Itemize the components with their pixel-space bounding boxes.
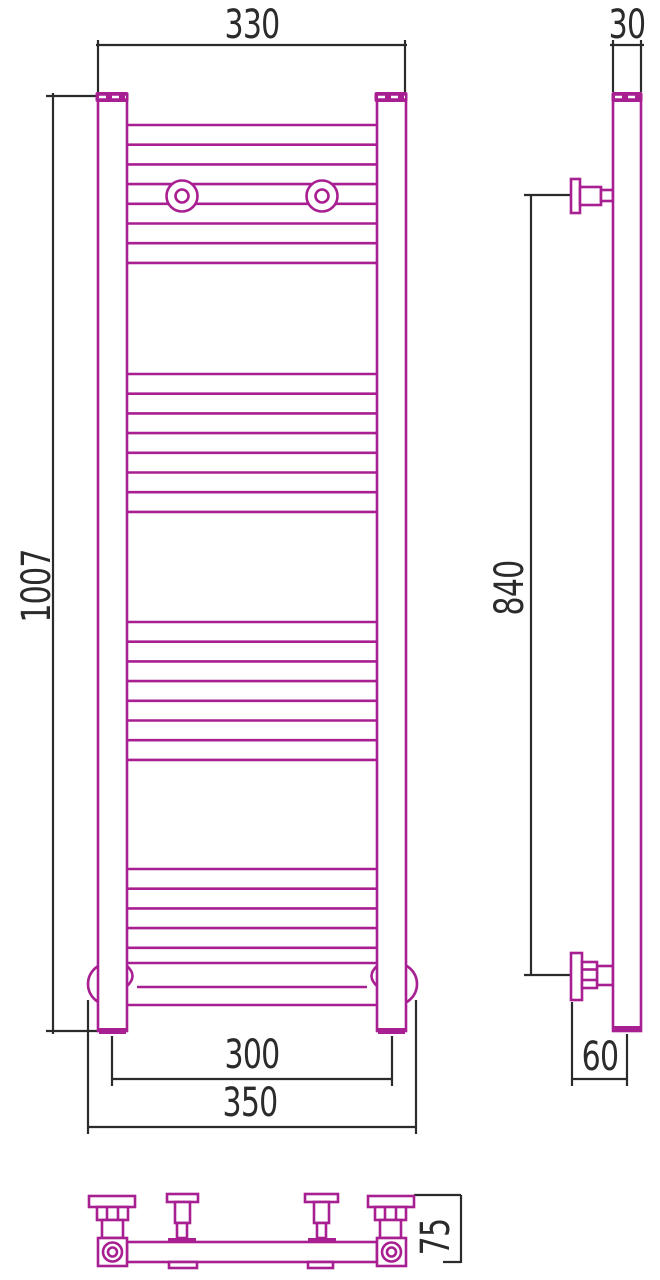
mid-bracket-stem — [314, 1202, 329, 1223]
drawing-canvas: 330 1007 300 350 30 840 60 — [0, 0, 660, 1280]
mid-bracket-stem-narrow — [177, 1223, 187, 1238]
mid-bracket-underfoot — [308, 1262, 333, 1268]
valve-port-inner — [108, 1248, 117, 1257]
corner-valve-nut — [97, 1207, 128, 1220]
post-bottom-cap — [99, 1028, 126, 1034]
collector-tube — [127, 1242, 377, 1262]
corner-valve-body — [102, 1220, 123, 1238]
corner-valve-body — [380, 1220, 401, 1238]
rung-lines — [127, 125, 377, 948]
corner-valve-plate — [368, 1196, 414, 1207]
bottom-view — [89, 1194, 414, 1268]
post-bottom-cap — [378, 1028, 405, 1034]
wall-bracket-roundel-center — [176, 190, 189, 203]
mid-bracket-underfoot — [169, 1262, 197, 1268]
dim-label-300: 300 — [225, 1032, 280, 1078]
dim-label-840: 840 — [487, 561, 533, 616]
left-post — [98, 95, 127, 1031]
side-view — [571, 92, 643, 1032]
wall-bracket-roundel-center — [316, 190, 329, 203]
top-bracket-flange — [571, 179, 580, 213]
dim-label-30: 30 — [609, 2, 646, 48]
mid-bracket-foot — [308, 1238, 336, 1243]
dim-label-330: 330 — [225, 2, 280, 48]
right-post — [377, 95, 406, 1031]
mid-bracket-foot — [168, 1238, 196, 1243]
valve-port-inner — [387, 1248, 396, 1257]
dim-label-75: 75 — [413, 1219, 459, 1256]
corner-valve-plate — [89, 1196, 135, 1207]
radiator-dimension-drawing: 330 1007 300 350 30 840 60 — [0, 0, 660, 1280]
top-bracket-pin — [601, 190, 613, 201]
top-bracket-arm — [580, 187, 601, 205]
corner-valve-nut — [375, 1207, 406, 1220]
bottom-bracket-nut — [582, 962, 597, 988]
side-rail — [613, 95, 641, 1031]
rail-bottom-cap — [614, 1026, 640, 1032]
front-view — [88, 92, 417, 1034]
mid-bracket-stem — [175, 1202, 190, 1223]
mid-bracket-stem-narrow — [317, 1223, 326, 1238]
dim-label-60: 60 — [582, 1034, 619, 1080]
dim-label-350: 350 — [223, 1080, 278, 1126]
bottom-bracket-flange — [571, 953, 582, 1000]
bottom-bracket-pin — [597, 966, 613, 985]
bottom-collector — [88, 963, 417, 1005]
dim-label-1007: 1007 — [14, 549, 60, 622]
